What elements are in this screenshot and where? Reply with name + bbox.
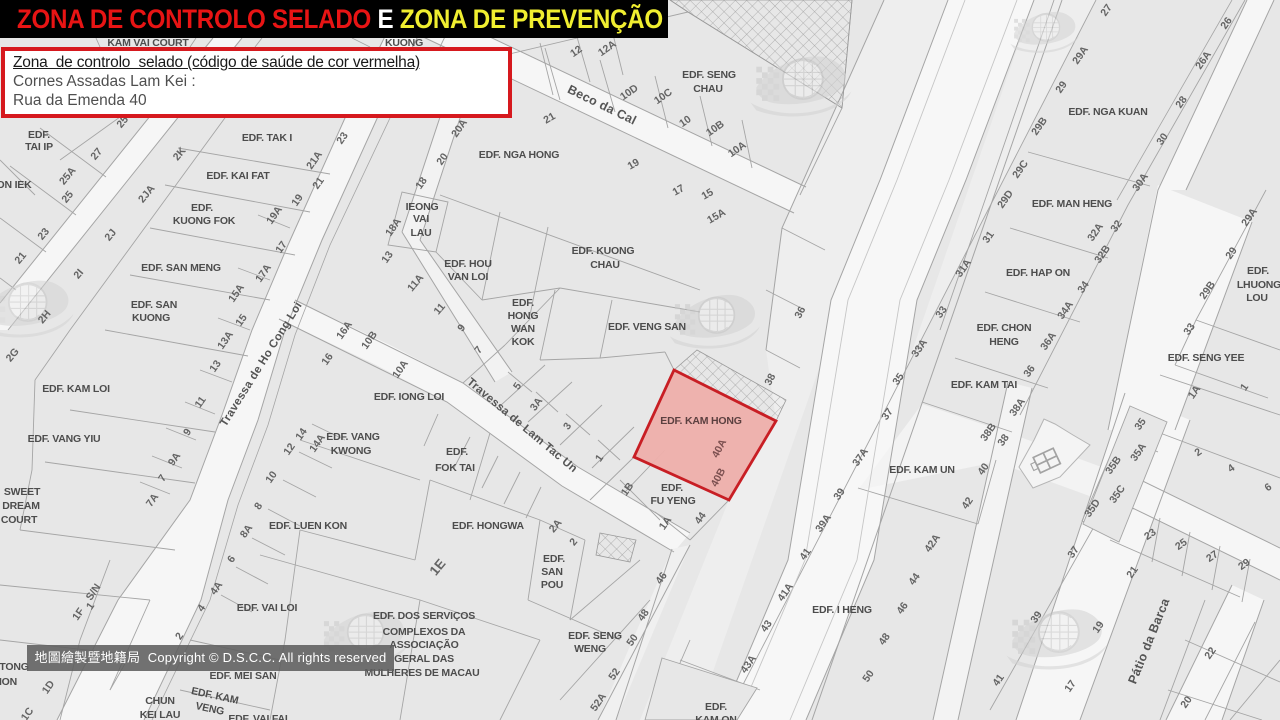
svg-text:CHUN: CHUN — [145, 695, 175, 707]
svg-text:EDF. CHON: EDF. CHON — [977, 322, 1032, 334]
svg-text:EDF. KAI FAT: EDF. KAI FAT — [206, 170, 270, 182]
svg-text:WAN: WAN — [511, 323, 535, 335]
svg-text:EDF.: EDF. — [512, 297, 534, 309]
svg-text:TAI IP: TAI IP — [25, 141, 53, 153]
svg-text:EDF. KAM TAI: EDF. KAM TAI — [951, 379, 1018, 391]
svg-text:EDF.: EDF. — [28, 129, 50, 141]
svg-text:COURT: COURT — [1, 514, 38, 526]
svg-text:EDF. KAM LOI: EDF. KAM LOI — [42, 383, 110, 395]
svg-text:EDF. TAK I: EDF. TAK I — [242, 132, 293, 144]
svg-text:EDF. LUEN KON: EDF. LUEN KON — [269, 520, 347, 532]
svg-text:EDF.: EDF. — [705, 701, 727, 713]
svg-text:EDF. DOS SERVIÇOS: EDF. DOS SERVIÇOS — [373, 610, 475, 622]
svg-text:ION: ION — [0, 676, 17, 688]
svg-text:FU YENG: FU YENG — [650, 495, 695, 507]
svg-text:EDF. SENG: EDF. SENG — [682, 69, 736, 81]
svg-text:VAI: VAI — [413, 213, 429, 225]
svg-text:EDF. SAN: EDF. SAN — [131, 299, 177, 311]
svg-text:EDF. HONGWA: EDF. HONGWA — [452, 520, 525, 532]
svg-text:VAN LOI: VAN LOI — [448, 271, 489, 283]
svg-text:WENG: WENG — [574, 643, 606, 655]
svg-text:EDF. VAI LOI: EDF. VAI LOI — [237, 602, 298, 614]
svg-text:KOK: KOK — [512, 336, 535, 348]
svg-text:EDF. SENG: EDF. SENG — [568, 630, 622, 642]
svg-text:KWONG: KWONG — [331, 445, 371, 457]
svg-text:EDF.: EDF. — [661, 482, 683, 494]
svg-text:EDF.: EDF. — [446, 446, 468, 458]
svg-text:KUONG FOK: KUONG FOK — [173, 215, 236, 227]
svg-text:ON IEK: ON IEK — [0, 179, 32, 191]
svg-text:TONG: TONG — [0, 661, 29, 673]
svg-text:EDF. HOU: EDF. HOU — [444, 258, 491, 270]
svg-text:SWEET: SWEET — [4, 486, 41, 498]
svg-text:EDF. MEI SAN: EDF. MEI SAN — [209, 670, 276, 682]
svg-text:POU: POU — [541, 579, 563, 591]
svg-text:KAM ON: KAM ON — [695, 714, 736, 720]
svg-text:LHUONG: LHUONG — [1237, 279, 1280, 291]
svg-text:COMPLEXOS DA: COMPLEXOS DA — [383, 626, 466, 638]
svg-text:EDF. KUONG: EDF. KUONG — [572, 245, 635, 257]
svg-text:DREAM: DREAM — [2, 500, 40, 512]
svg-text:ASSOCIAÇÃO: ASSOCIAÇÃO — [389, 638, 458, 651]
svg-text:KEI LAU: KEI LAU — [140, 709, 181, 720]
svg-text:EDF.: EDF. — [543, 553, 565, 565]
svg-text:EDF. VANG: EDF. VANG — [326, 431, 379, 443]
svg-text:EDF. SAN MENG: EDF. SAN MENG — [141, 262, 221, 274]
svg-text:SAN: SAN — [541, 566, 563, 578]
svg-text:EDF.: EDF. — [191, 202, 213, 214]
svg-text:FOK TAI: FOK TAI — [435, 462, 475, 474]
svg-text:LAU: LAU — [411, 227, 432, 239]
svg-text:EDF. I HENG: EDF. I HENG — [812, 604, 872, 616]
svg-text:EDF. IONG LOI: EDF. IONG LOI — [374, 391, 445, 403]
svg-text:EDF. KAM HONG: EDF. KAM HONG — [660, 415, 741, 427]
svg-text:EDF. VENG SAN: EDF. VENG SAN — [608, 321, 686, 333]
svg-text:EDF. NGA KUAN: EDF. NGA KUAN — [1068, 106, 1147, 118]
svg-text:GERAL DAS: GERAL DAS — [394, 653, 454, 665]
svg-text:EDF. VAI FAI: EDF. VAI FAI — [228, 713, 288, 720]
svg-text:EDF. MAN HENG: EDF. MAN HENG — [1032, 198, 1112, 210]
svg-text:EDF. HAP ON: EDF. HAP ON — [1006, 267, 1070, 279]
svg-text:EDF.: EDF. — [1247, 265, 1269, 277]
svg-text:CHAU: CHAU — [590, 259, 620, 271]
svg-text:LOU: LOU — [1246, 292, 1268, 304]
svg-text:HENG: HENG — [989, 336, 1019, 348]
svg-text:KUONG: KUONG — [132, 312, 170, 324]
svg-text:CHAU: CHAU — [693, 83, 723, 95]
svg-text:IEONG: IEONG — [406, 201, 439, 213]
svg-text:EDF. KAM UN: EDF. KAM UN — [889, 464, 954, 476]
svg-text:HONG: HONG — [508, 310, 539, 322]
svg-text:EDF. SENG YEE: EDF. SENG YEE — [1168, 352, 1245, 364]
svg-text:EDF. NGA HONG: EDF. NGA HONG — [479, 149, 559, 161]
svg-text:EDF. VANG YIU: EDF. VANG YIU — [28, 433, 101, 445]
